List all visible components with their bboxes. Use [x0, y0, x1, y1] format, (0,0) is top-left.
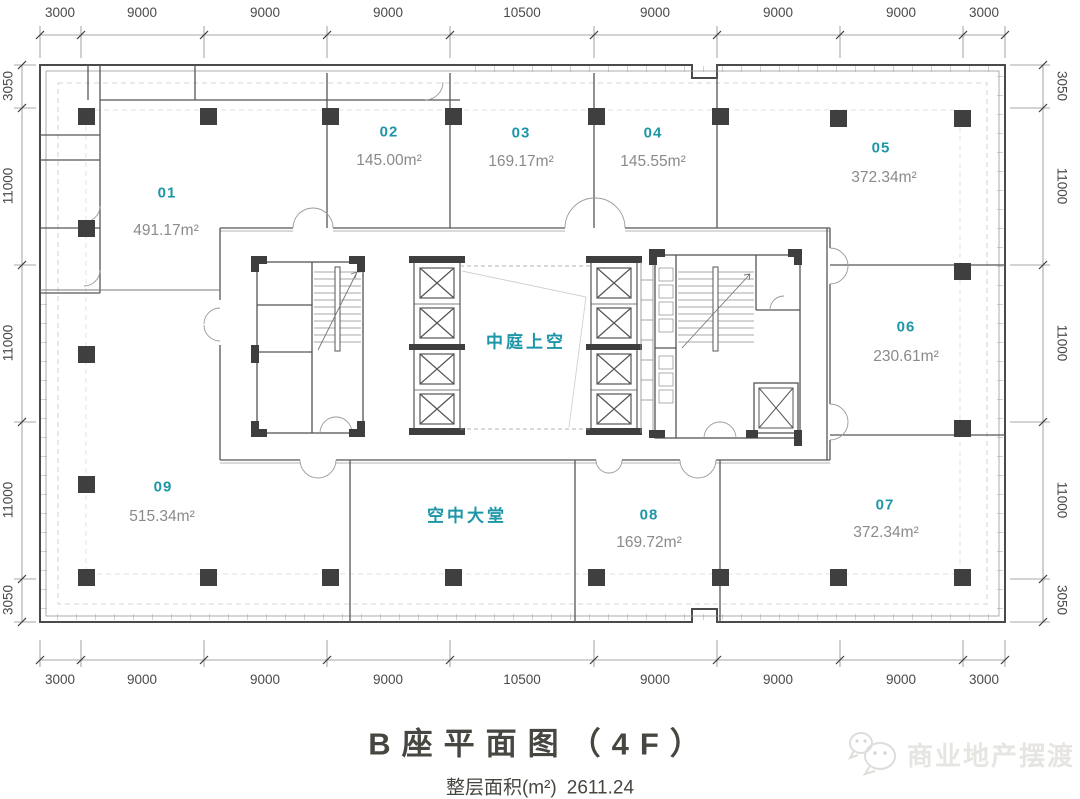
room-03-area: 169.17m² — [488, 153, 553, 171]
dim-label-left-1: 3050 — [1, 71, 16, 101]
dim-label-top-3: 9000 — [250, 5, 280, 20]
page-title: B座平面图（4F） — [368, 719, 712, 764]
dim-label-left-4: 11000 — [1, 482, 16, 519]
dim-label-top-6: 9000 — [640, 5, 670, 20]
room-05-area: 372.34m² — [851, 169, 916, 187]
watermark-logo: 商业地产摆渡 — [845, 728, 1075, 781]
room-09-number: 09 — [154, 479, 173, 496]
elevator-bank-right — [586, 256, 642, 435]
dim-label-bottom-4: 9000 — [373, 672, 403, 687]
room-02-number: 02 — [380, 124, 399, 141]
dim-label-left-3: 11000 — [1, 325, 16, 362]
right-core — [655, 255, 800, 438]
dim-label-bottom-2: 9000 — [127, 672, 157, 687]
atrium-label: 中庭上空 — [486, 328, 566, 353]
dim-label-top-1: 3000 — [45, 5, 75, 20]
dim-label-left-2: 11000 — [1, 168, 16, 205]
total-area-line: 整层面积(m²)2611.24 — [446, 773, 634, 799]
dim-label-bottom-9: 3000 — [969, 672, 999, 687]
floor-plan-page: 3000 9000 9000 9000 10500 9000 9000 9000… — [0, 0, 1080, 799]
left-core-wall-chunks — [251, 256, 365, 437]
dim-label-top-4: 9000 — [373, 5, 403, 20]
dim-label-bottom-3: 9000 — [250, 672, 280, 687]
watermark-text: 商业地产摆渡 — [907, 736, 1075, 773]
dim-label-bottom-7: 9000 — [763, 672, 793, 687]
room-06-area: 230.61m² — [873, 348, 938, 366]
room-06-number: 06 — [897, 319, 916, 336]
room-03-number: 03 — [512, 125, 531, 142]
dim-label-left-5: 3050 — [1, 585, 16, 615]
left-stair-core — [257, 262, 363, 433]
dim-label-bottom-6: 9000 — [640, 672, 670, 687]
dim-label-right-5: 3050 — [1055, 585, 1070, 615]
room-04-area: 145.55m² — [620, 153, 685, 171]
room-01-number: 01 — [158, 185, 177, 202]
room-02-area: 145.00m² — [356, 152, 421, 170]
room-07-number: 07 — [876, 497, 895, 514]
elevator-bank-left — [409, 256, 465, 435]
room-01-area: 491.17m² — [133, 222, 198, 240]
washroom-strip — [641, 262, 653, 433]
dim-label-right-2: 11000 — [1055, 168, 1070, 205]
room-07-area: 372.34m² — [853, 524, 918, 542]
dim-label-right-1: 3050 — [1055, 71, 1070, 101]
dim-label-top-7: 9000 — [763, 5, 793, 20]
chat-bubbles-icon — [845, 728, 901, 781]
room-09-area: 515.34m² — [129, 508, 194, 526]
room-04-number: 04 — [644, 125, 663, 142]
door-arcs — [84, 82, 848, 478]
dim-label-bottom-8: 9000 — [886, 672, 916, 687]
total-area-label: 整层面积(m²) — [446, 778, 557, 799]
dim-label-right-3: 11000 — [1055, 325, 1070, 362]
total-area-value: 2611.24 — [567, 778, 634, 799]
dim-label-bottom-1: 3000 — [45, 672, 75, 687]
room-08-number: 08 — [640, 507, 659, 524]
room-05-number: 05 — [872, 140, 891, 157]
dim-label-bottom-5: 10500 — [503, 672, 541, 687]
room-08-area: 169.72m² — [616, 534, 681, 552]
sky-lobby-label: 空中大堂 — [427, 502, 507, 527]
dim-label-top-2: 9000 — [127, 5, 157, 20]
dim-label-top-5: 10500 — [503, 5, 541, 20]
dim-label-top-8: 9000 — [886, 5, 916, 20]
dim-label-right-4: 11000 — [1055, 482, 1070, 519]
dim-label-top-9: 3000 — [969, 5, 999, 20]
